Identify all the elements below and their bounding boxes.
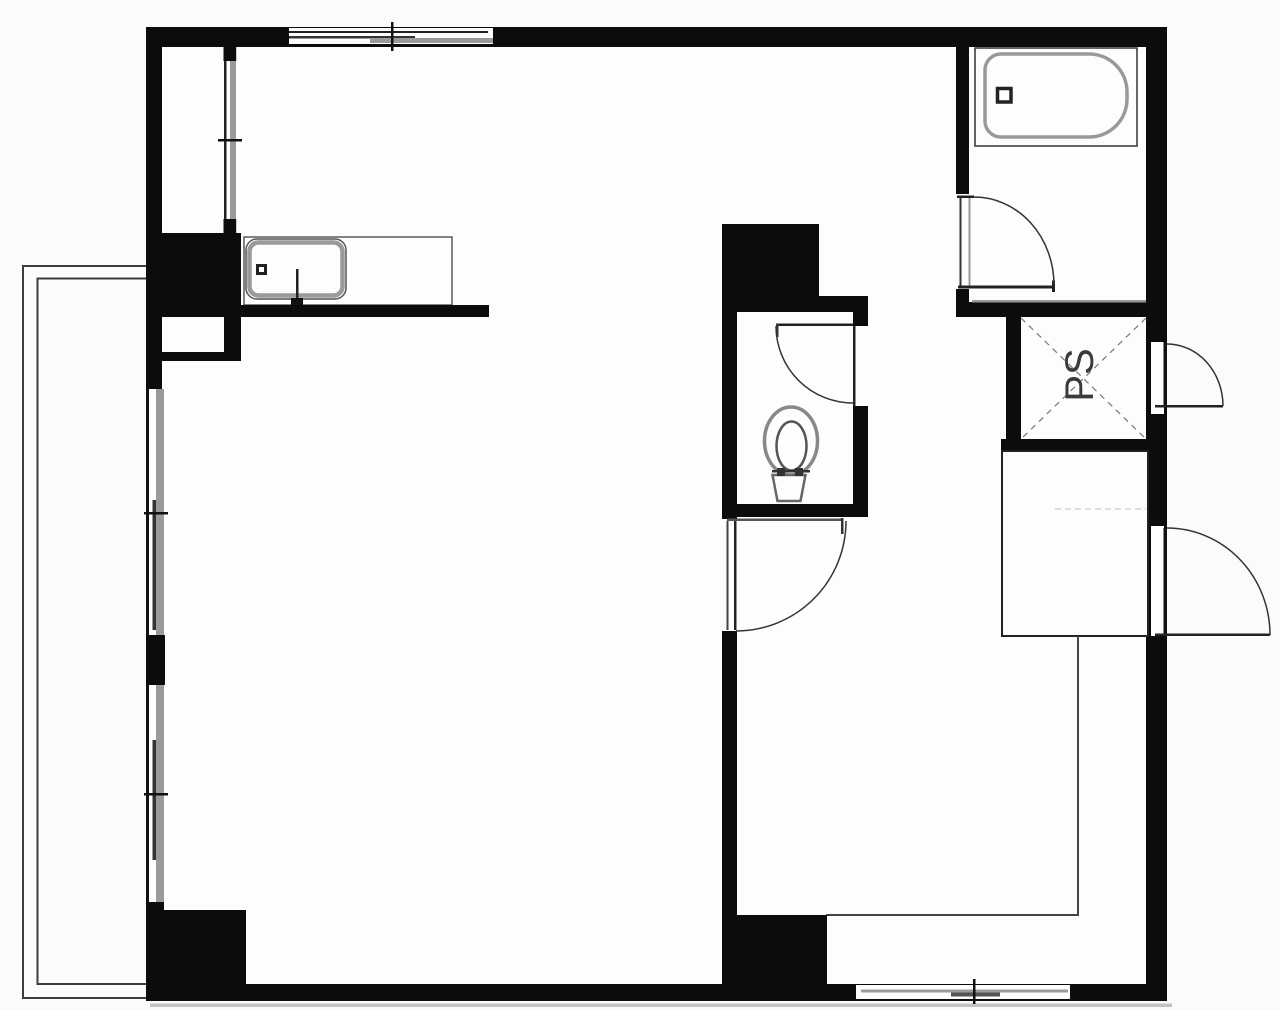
- svg-text:PS: PS: [1058, 348, 1102, 401]
